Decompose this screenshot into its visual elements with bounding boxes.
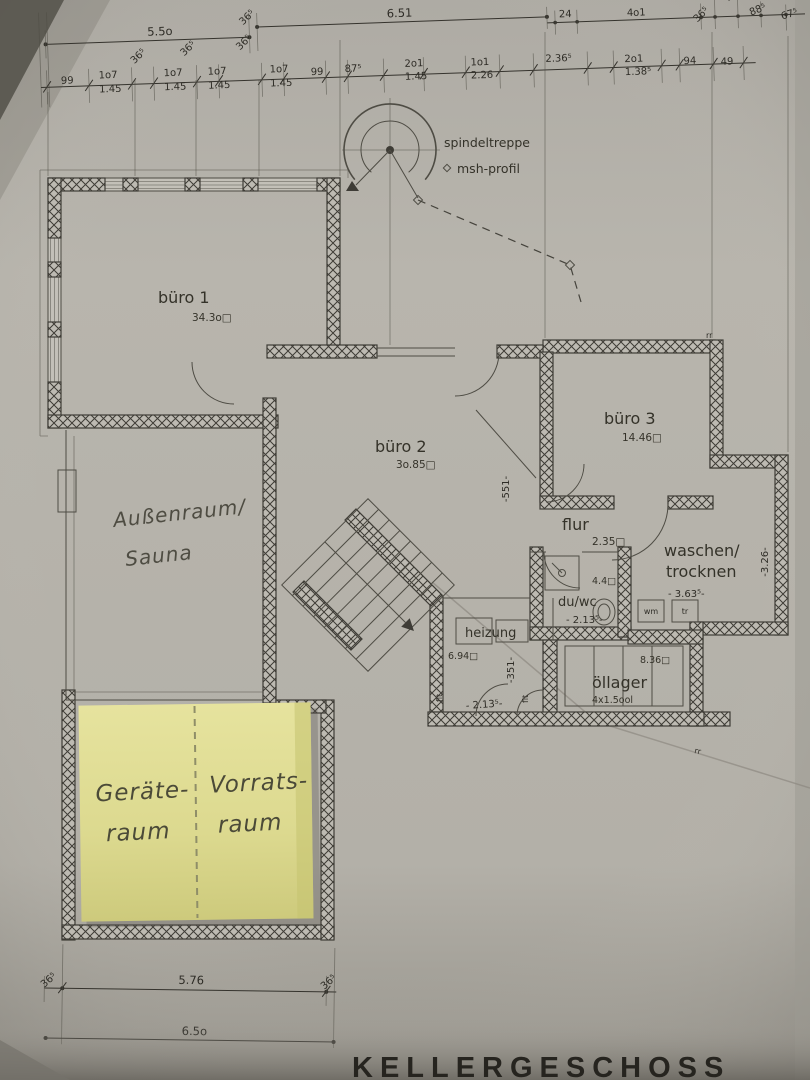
dim-waschen-width: - 3.63⁵- [668, 589, 705, 600]
dim-r2-12: 49 [720, 56, 733, 67]
area-label-oellager: 8.36□ [640, 655, 670, 666]
dim-r2-1b: 1.45 [99, 84, 122, 96]
dim-r2-9: 2.36⁵ [545, 53, 572, 65]
dim-r2-3t: 1o7 [207, 66, 226, 78]
right-edge-shade [795, 0, 810, 1080]
dim-r2-7t: 2o1 [404, 58, 423, 70]
room-label-waschen-2: trocknen [666, 562, 736, 581]
dim-r2-8t: 1o1 [470, 57, 489, 69]
area-label-buero3: 14.46□ [622, 432, 662, 444]
dim-401: 4o1 [627, 7, 646, 19]
label-flt-left: flt [435, 694, 444, 702]
dim-r2-2t: 1o7 [163, 68, 182, 80]
dim-r2-10b: 1.38⁵ [625, 66, 652, 78]
dim-r2-4b: 1.45 [270, 78, 293, 90]
dim-r2-6: 87⁵ [344, 63, 361, 75]
note-geraeteraum-1: Geräte- [95, 777, 190, 808]
area-label-buero2: 3o.85□ [396, 459, 436, 471]
note-geraeteraum-2: raum [105, 818, 171, 847]
room-label-buero3: büro 3 [604, 409, 656, 428]
dim-351-vertical: -351- [506, 656, 517, 683]
dim-r2-11: 94 [683, 56, 696, 67]
dim-duwc-width: - 2.13⁵- [566, 615, 603, 626]
room-label-duwc: du/wc [558, 595, 597, 610]
dim-r2-7b: 1.45 [405, 71, 428, 83]
dim-r2-3b: 1.45 [208, 80, 231, 92]
dim-r2-5: 99 [311, 67, 324, 78]
dim-r2-8b: 2.26 [471, 70, 494, 82]
room-label-buero2: büro 2 [375, 437, 427, 456]
label-rr-top: rr [706, 331, 713, 340]
dim-576: 5.76 [178, 973, 204, 987]
note-vorratsraum-1: Vorrats- [209, 768, 309, 799]
msh-profil-label: msh-profil [457, 161, 520, 176]
spindeltreppe-label: spindeltreppe [444, 135, 530, 150]
tank-label-oellager: 4x1.5ool [592, 695, 633, 706]
note-vorratsraum-2: raum [217, 810, 283, 839]
plan-title: KELLERGESCHOSS [352, 1052, 730, 1080]
dim-r2-0: 99 [61, 75, 74, 86]
dim-550: 5.5o [147, 24, 173, 39]
dim-r2-4t: 1o7 [269, 64, 288, 76]
dim-551-vertical: -551- [501, 475, 512, 502]
room-label-flur: flur [562, 515, 589, 534]
area-label-buero1: 34.3o□ [192, 312, 232, 324]
floorplan-photo: 5.5o 6.51 24 4o1 88⁵ 67⁵ 36⁵ 36⁵ 36⁵ 36⁵… [0, 0, 810, 1080]
area-label-flur: 2.35□ [592, 536, 625, 548]
sticky-note: Geräte- raum Vorrats- raum [78, 702, 320, 927]
washing-machine-label: wm [644, 607, 659, 616]
label-flt-right: flt [521, 695, 530, 703]
area-label-heizung: 6.94□ [448, 651, 478, 662]
dim-326-vertical: -3.26- [760, 547, 771, 577]
room-label-oellager: öllager [592, 673, 647, 692]
dim-651: 6.51 [386, 6, 412, 21]
dim-r2-10t: 2o1 [624, 54, 643, 66]
room-label-buero1: büro 1 [158, 288, 210, 307]
sticky-note-edge-shade [294, 702, 313, 918]
dim-r2-1t: 1o7 [99, 70, 118, 82]
basement-floorplan-drawing: 5.5o 6.51 24 4o1 88⁵ 67⁵ 36⁵ 36⁵ 36⁵ 36⁵… [0, 0, 810, 1080]
room-label-waschen-1: waschen/ [664, 541, 740, 560]
room-label-heizung: heizung [465, 626, 516, 641]
area-label-duwc: 4.4□ [592, 576, 616, 587]
dim-r2-2b: 1.45 [164, 81, 187, 93]
dim-24: 24 [559, 9, 572, 20]
dryer-label: tr [682, 607, 689, 616]
